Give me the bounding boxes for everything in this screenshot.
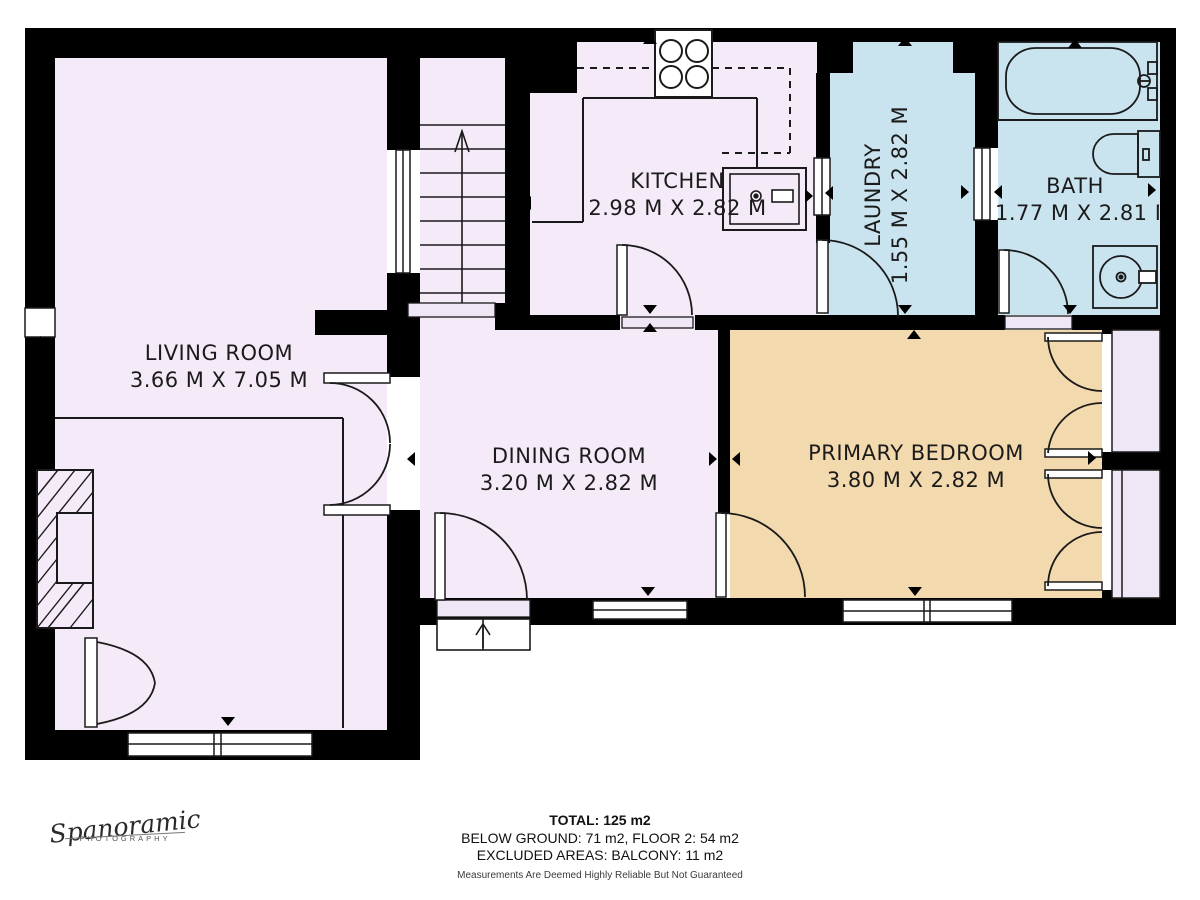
dining-room-label: DINING ROOM 3.20 M X 2.82 M (420, 443, 718, 497)
room-name: BATH (995, 173, 1155, 200)
disclaimer-text: Measurements Are Deemed Highly Reliable … (0, 870, 1200, 881)
living-room-label: LIVING ROOM 3.66 M X 7.05 M (70, 340, 368, 394)
chimney-hatch (37, 470, 93, 628)
balcony-bay-upper (1112, 330, 1160, 452)
room-dims: 3.20 M X 2.82 M (420, 470, 718, 497)
laundry-door-leaf (817, 240, 828, 313)
bath-door-leaf (999, 250, 1009, 313)
living-closet-door-leaf (85, 638, 97, 727)
room-name: PRIMARY BEDROOM (730, 440, 1102, 467)
room-dims: 2.98 M X 2.82 M (545, 195, 810, 222)
entry-steps (437, 619, 530, 650)
branding-signature: Spanoramic PHOTOGRAPHY (40, 812, 210, 843)
room-name: LIVING ROOM (70, 340, 368, 367)
room-name: LAUNDRY (860, 80, 887, 310)
living-dining-door-leaf-bottom (324, 505, 390, 515)
primary-bedroom-label: PRIMARY BEDROOM 3.80 M X 2.82 M (730, 440, 1102, 494)
room-dims: 1.55 M X 2.82 M (887, 80, 914, 310)
french-door-leaf-4 (1045, 582, 1102, 590)
room-dims: 1.77 M X 2.81 M (995, 200, 1159, 227)
kitchen-door-leaf (617, 245, 627, 315)
bedroom-door-leaf (716, 513, 726, 597)
living-room-area (55, 58, 387, 730)
living-left-window (25, 308, 55, 337)
room-dims: 3.80 M X 2.82 M (730, 467, 1102, 494)
balcony-bay-lower (1112, 470, 1160, 598)
excluded-areas-text: EXCLUDED AREAS: BALCONY: 11 m2 (0, 847, 1200, 863)
laundry-label: LAUNDRY 1.55 M X 2.82 M (860, 80, 916, 310)
room-name: DINING ROOM (420, 443, 718, 470)
room-dims: 3.66 M X 7.05 M (70, 367, 368, 394)
room-name: KITCHEN (545, 168, 810, 195)
french-door-leaf-1 (1045, 333, 1102, 341)
kitchen-label: KITCHEN 2.98 M X 2.82 M (545, 168, 810, 222)
dining-door-leaf (435, 513, 445, 600)
bath-label: BATH 1.77 M X 2.81 M (995, 173, 1159, 233)
floorplan-page: LIVING ROOM 3.66 M X 7.05 M KITCHEN 2.98… (0, 0, 1200, 900)
laundry-area-top (853, 42, 953, 77)
stove-icon (655, 30, 712, 97)
